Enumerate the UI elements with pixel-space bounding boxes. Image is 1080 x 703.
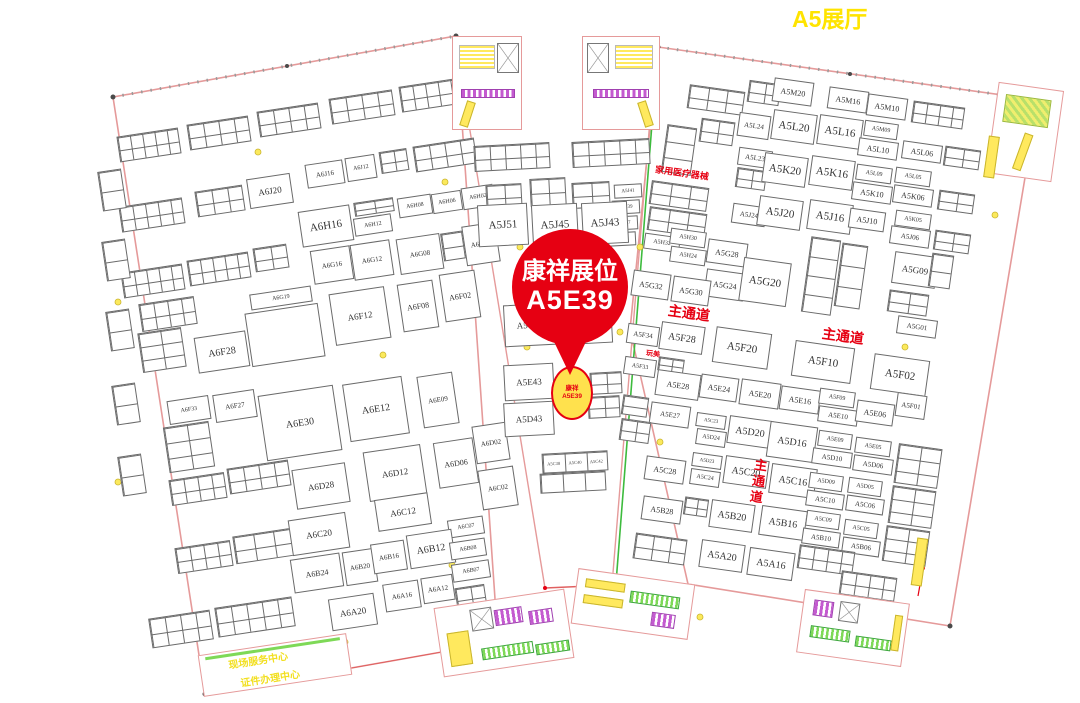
booth-cells: [256, 103, 321, 138]
booth-A6F12: A6F12: [328, 286, 391, 346]
booth-label: A6D02: [480, 438, 502, 449]
booth-cells: [893, 443, 942, 489]
booth-label: A5E27: [660, 410, 681, 421]
booth-A5G20: A5G20: [738, 257, 792, 307]
booth-A6C02: A6C02: [477, 466, 519, 511]
booth-label: A5M20: [780, 86, 806, 98]
booth-label: A6B12: [416, 541, 446, 556]
booth-A6F08: A6F08: [397, 280, 440, 333]
escalator-ramp: [637, 100, 654, 128]
booth-A5E27: A5E27: [649, 401, 692, 428]
booth-label: A6B20: [349, 562, 370, 573]
booth-label: A5D06: [862, 460, 884, 471]
booth-label: A5C24: [696, 474, 714, 482]
booth-cells: [97, 168, 127, 211]
booth-label: A5D10: [821, 453, 843, 464]
booth-A6F27: A6F27: [212, 389, 258, 423]
booth-A5B16: A5B16: [758, 505, 808, 541]
booth-cells: [116, 128, 181, 163]
booth-label: A5F34: [633, 330, 653, 341]
booth-A5K10: A5K10: [851, 181, 893, 204]
entrance-module: [986, 82, 1064, 182]
booth-label: A5K05: [904, 216, 922, 224]
booth-cells: [911, 100, 966, 129]
booth-A5K06: A5K06: [892, 184, 934, 207]
booth-label: A5D23: [699, 457, 714, 464]
booth-label: A6B24: [305, 567, 329, 579]
booth-label: A6C07: [457, 523, 475, 531]
hall-title: A5展厅: [792, 0, 867, 34]
pin-booth-name: 康祥展位: [522, 258, 618, 286]
booth-cells: [683, 496, 709, 517]
booth-label: A5J51: [488, 218, 517, 231]
booth-label: A5B16: [768, 516, 798, 531]
booth-A5J10: A5J10: [848, 208, 886, 233]
booth-A5E16: A5E16: [779, 385, 822, 414]
booth-label: A6B16: [378, 552, 399, 563]
booth-label: A5M10: [874, 101, 900, 113]
booth-A6J16: A6J16: [304, 159, 345, 188]
booth-label: A5G30: [679, 285, 704, 297]
booth-label: A5H30: [679, 234, 697, 242]
booth-cells: [687, 84, 746, 116]
aisle-label: 玩美: [645, 348, 660, 360]
booth-A5E10: A5E10: [817, 405, 859, 426]
booth-label: A5F33: [631, 363, 648, 371]
booth-A6J20: A6J20: [246, 173, 294, 209]
booth-label: A5E20: [748, 388, 772, 400]
booth-label: A5D43: [516, 413, 543, 424]
booth-label: A5B06: [850, 542, 871, 553]
booth-cells: [621, 394, 650, 417]
booth-cells: [589, 371, 622, 395]
booth-label: A5K06: [901, 190, 926, 202]
booth-cells: [619, 418, 652, 444]
booth-label: A6C20: [305, 527, 332, 541]
booth-label: A5L16: [824, 124, 857, 140]
booth-A6A20: A6A20: [328, 593, 378, 631]
service-block: [446, 630, 473, 667]
booth-A6J12: A6J12: [344, 154, 377, 182]
booth-A6H06: A6H06: [431, 190, 464, 214]
booth-A6E12: A6E12: [342, 376, 410, 442]
booth-cells: [117, 453, 147, 496]
booth-A5M09: A5M09: [863, 120, 899, 141]
booth-A5C28: A5C28: [644, 455, 687, 484]
booth-label: A5J43: [590, 216, 619, 229]
booth-A6C12: A6C12: [374, 492, 432, 532]
booth-A5D24: A5D24: [695, 428, 727, 448]
booth-cells: [379, 148, 410, 174]
booth-A6H16: A6H16: [298, 204, 355, 247]
entrance-escalator: [1002, 94, 1051, 128]
booth-A5D23: A5D23: [691, 452, 723, 470]
booth-label: A5L06: [910, 146, 934, 158]
booth-label: A5F28: [667, 331, 696, 346]
top-right-service-module: [582, 36, 660, 130]
booth-cells: [105, 308, 135, 351]
booth-label: A6E12: [361, 401, 391, 416]
booth-label: A5E09: [826, 436, 844, 444]
booth-A5F01: A5F01: [894, 392, 927, 420]
fixture-strip: [494, 606, 524, 626]
pin-booth-number: A5E39: [526, 285, 614, 316]
booth-A6A12: A6A12: [420, 574, 455, 604]
booth-A5G01: A5G01: [896, 315, 938, 338]
target-booth-name: 康祥: [566, 385, 579, 393]
booth-label: A5M16: [835, 94, 861, 106]
booth-label: A6F28: [207, 345, 236, 360]
booth-A5L09: A5L09: [855, 164, 893, 185]
fixture-strip: [812, 599, 834, 618]
booth-A5C09: A5C09: [805, 510, 841, 531]
booth-A5H24: A5H24: [669, 246, 707, 267]
booth-label: A5L10: [866, 143, 890, 155]
escalator-hatch: [459, 45, 495, 69]
elevator-icon: [587, 43, 609, 73]
booth-label: A6D28: [307, 479, 335, 493]
booth-A6E09: A6E09: [416, 372, 459, 429]
booth-label: A6D06: [444, 457, 469, 469]
booth-A5L16: A5L16: [816, 114, 864, 150]
booth-A6A16: A6A16: [382, 579, 422, 612]
booth-cells: [571, 138, 650, 168]
booth-label: A5C16: [778, 474, 808, 489]
booth-A5F34: A5F34: [626, 323, 660, 347]
booth-A5L24: A5L24: [736, 112, 771, 140]
stairs-hatch: [629, 591, 680, 610]
top-left-service-module: [452, 36, 522, 130]
booth-cells: [168, 472, 227, 506]
booth-label: A5G24: [713, 279, 738, 291]
booth-cells: [943, 146, 981, 171]
booth-A6D06: A6D06: [433, 437, 479, 488]
booth-label: A6G19: [272, 294, 290, 303]
booth-label: A6H08: [406, 202, 424, 211]
booth-cells: [933, 230, 971, 255]
booth-label: A5E43: [516, 376, 542, 387]
booth-A5E20: A5E20: [738, 378, 781, 409]
booth-A5E28: A5E28: [654, 369, 701, 401]
booth-A5G32: A5G32: [630, 269, 671, 300]
booth-label: A5J41: [621, 188, 634, 194]
booth-label: A6B08: [459, 545, 477, 553]
booth-A5M10: A5M10: [866, 93, 909, 120]
booth-A5F20: A5F20: [712, 326, 772, 369]
booth-label: A5A16: [756, 557, 787, 572]
booth-label: A5C05: [852, 525, 870, 533]
booth-cells: [698, 118, 735, 146]
booth-label: A5L23: [745, 153, 766, 164]
booth-cells: [252, 244, 289, 273]
booth-label: A5H24: [679, 252, 697, 260]
booth-A6C07: A6C07: [447, 515, 485, 538]
booth-A5L10: A5L10: [857, 137, 899, 160]
booth-label: A5M09: [871, 126, 890, 135]
booth-cells: [412, 138, 477, 173]
escalator-ramp: [890, 615, 903, 652]
booth-cells: [194, 185, 245, 218]
booth-cells: [937, 190, 975, 215]
booth-A5A20: A5A20: [698, 539, 745, 573]
booth-A5C10: A5C10: [805, 489, 845, 510]
target-booth-number: A5E39: [562, 393, 582, 401]
booth-label: A5L09: [865, 170, 883, 178]
booth-cells: [111, 382, 141, 425]
booth-label: A5L20: [778, 119, 811, 135]
booth-label: A5C10: [814, 495, 835, 506]
booth-A6B08: A6B08: [449, 537, 487, 560]
booth-A5D43: A5D43: [503, 401, 555, 438]
booth-cells: [244, 303, 325, 367]
booth-label: A6J16: [315, 169, 334, 180]
booth-label: A6G08: [409, 249, 431, 260]
booth-cells: [473, 142, 550, 172]
booth-cells: [232, 528, 295, 565]
booth-label: A6J20: [258, 184, 283, 197]
booth-cells: [120, 264, 185, 299]
booth-cell-label: A5C40: [564, 459, 586, 465]
booth-A5F02: A5F02: [870, 353, 930, 396]
elevator-icon: [469, 607, 494, 632]
booth-label: A6F08: [406, 300, 429, 312]
booth-A5L20: A5L20: [770, 109, 818, 145]
booth-label: A5B28: [650, 504, 674, 516]
booth-A5F28: A5F28: [658, 321, 705, 355]
booth-label: A5C09: [814, 516, 832, 524]
booth-A6G12: A6G12: [350, 239, 395, 281]
booth-A5J20: A5J20: [756, 195, 804, 231]
booth-A5F33: A5F33: [623, 356, 657, 378]
fixture-strip: [461, 89, 515, 98]
booth-label: A5D09: [817, 478, 835, 486]
booth-label: A6F27: [225, 401, 245, 412]
booth-A5J51: A5J51: [477, 203, 529, 248]
escalator-ramp: [459, 100, 476, 128]
booth-cells: [540, 470, 607, 493]
booth-A5D06: A5D06: [852, 454, 894, 475]
booth-A6H08: A6H08: [397, 194, 434, 219]
booth-label: A5C06: [854, 500, 875, 511]
booth-A5K20: A5K20: [761, 152, 809, 188]
service-block: [583, 594, 624, 608]
booth-label: A5K16: [815, 165, 849, 181]
booth-cells: [632, 533, 687, 566]
booth-label: A5G32: [639, 279, 664, 291]
fixture-strip: [528, 608, 554, 625]
booth-label: A6A16: [391, 591, 413, 602]
booth-label: A6J12: [353, 164, 369, 172]
booth-cells: [148, 610, 214, 649]
booth-label: A5B20: [717, 509, 747, 524]
booth-cells: [887, 289, 930, 316]
booth-A5C06: A5C06: [845, 494, 885, 515]
booth-label: A5K10: [860, 187, 885, 199]
booth-A5M16: A5M16: [827, 86, 870, 113]
booth-A6G16: A6G16: [310, 245, 355, 285]
booth-cell-label: A5C38: [543, 460, 565, 466]
booth-A5E09: A5E09: [817, 430, 853, 451]
fixture-strip: [593, 89, 649, 98]
booth-cells: [138, 296, 198, 332]
booth-cells: [174, 540, 233, 574]
booth-label: A6B07: [462, 567, 480, 575]
booth-label: A5L24: [744, 121, 765, 132]
booth-A6C20: A6C20: [288, 512, 351, 556]
booth-A5C23: A5C23: [695, 412, 727, 430]
booth-cells: [328, 89, 395, 124]
booth-A6B24: A6B24: [290, 552, 344, 593]
booth-label: A5G09: [901, 263, 929, 277]
booth-label: A5B10: [810, 533, 831, 544]
booth-A5G28: A5G28: [706, 238, 749, 267]
booth-label: A6F33: [180, 406, 197, 414]
booth-label: A5E24: [707, 382, 731, 394]
elevator-icon: [838, 601, 861, 624]
booth-label: A6H12: [364, 221, 382, 230]
booth-label: A6H02: [469, 193, 487, 202]
booth-A6F28: A6F28: [194, 330, 251, 373]
booth-label: A5G01: [906, 322, 928, 333]
booth-label: A5E28: [666, 379, 690, 391]
booth-A5E24: A5E24: [699, 373, 740, 402]
booth-label: A6C02: [487, 483, 508, 494]
fixture-strip: [650, 612, 676, 629]
booth-A5J41: A5J41: [614, 183, 643, 198]
booth-cells: [137, 327, 186, 373]
exhibition-floorplan: A6J20A6J16A6J12A6H16A6H12A6H08A6H06A6H02…: [0, 0, 1080, 703]
booth-label: A5F02: [884, 367, 916, 383]
booth-label: A5J06: [900, 232, 919, 242]
booth-cells: [214, 596, 296, 637]
stairs-hatch: [854, 635, 891, 651]
booth-cells: [888, 485, 937, 529]
booth-label: A6E09: [428, 395, 449, 406]
booth-A6B07: A6B07: [451, 559, 491, 582]
escalator-ramp: [1012, 132, 1033, 171]
booth-label: A6H06: [438, 198, 456, 207]
booth-label: A5J10: [856, 214, 878, 226]
booth-A6D28: A6D28: [291, 462, 350, 510]
booth-cells: [226, 460, 291, 495]
booth-label: A5F20: [726, 340, 758, 356]
booth-A5E06: A5E06: [855, 399, 896, 426]
booth-label: A6H16: [309, 218, 343, 235]
booth-A6B16: A6B16: [370, 540, 408, 575]
booth-A5K16: A5K16: [808, 155, 856, 191]
booth-label: A5C23: [703, 418, 718, 425]
stairs-hatch: [535, 640, 570, 656]
booth-label: A6D12: [381, 466, 409, 480]
booth-cells: [163, 421, 215, 473]
booth-A5J16: A5J16: [806, 199, 854, 235]
booth-A5A16: A5A16: [746, 547, 795, 581]
booth-label: A6F02: [448, 290, 471, 302]
booth-cells: [186, 252, 251, 287]
booth-label: A5F01: [901, 401, 921, 412]
booth-label: A5F09: [828, 394, 845, 402]
booth-A5C24: A5C24: [689, 468, 721, 488]
booth-label: A6G16: [321, 260, 343, 271]
booth-A5B28: A5B28: [641, 495, 684, 524]
booth-cell-label: A5C42: [586, 458, 608, 464]
booth-label: A6C12: [389, 505, 416, 519]
booth-label: A5C28: [653, 464, 677, 476]
booth-label: A6F12: [347, 309, 373, 323]
booth-A6G08: A6G08: [396, 233, 445, 275]
booth-label: A6A12: [427, 584, 449, 595]
booth-label: A6G12: [361, 255, 383, 266]
booth-label: A5L05: [904, 173, 922, 181]
booth-A5D10: A5D10: [811, 447, 853, 468]
booth-A5L06: A5L06: [901, 140, 943, 163]
booth-label: A5E05: [864, 443, 882, 451]
booth-cells: [529, 177, 566, 207]
service-block: [585, 578, 626, 592]
booth-label: A5J20: [765, 205, 795, 221]
location-pin: 康祥展位 A5E39: [512, 229, 628, 345]
stairs-hatch: [481, 641, 534, 661]
booth-label: A5D20: [735, 425, 766, 440]
booth-label: A5F10: [807, 354, 839, 370]
booth-A5D16: A5D16: [766, 421, 819, 463]
booth-label: A5G28: [715, 247, 740, 259]
elevator-icon: [497, 43, 519, 73]
booth-A6F02: A6F02: [439, 270, 482, 323]
booth-label: A5D24: [702, 434, 720, 442]
booth-cells: [101, 238, 131, 281]
booth-A6E30: A6E30: [258, 385, 343, 462]
booth-label: A6E30: [285, 415, 315, 430]
booth-A6B12: A6B12: [406, 529, 457, 569]
booth-label: A5J24: [739, 210, 758, 220]
escalator-hatch: [615, 45, 653, 69]
booth-label: A5A20: [707, 549, 738, 564]
booth-label: A5D16: [777, 435, 808, 450]
booth-label: A5K20: [768, 162, 802, 178]
booth-cells: [118, 197, 185, 232]
booth-label: A6A20: [339, 605, 367, 619]
booth-cells: [186, 116, 251, 151]
booth-label: A5E10: [828, 411, 849, 422]
stairs-hatch: [809, 625, 850, 642]
booth-label: A5E16: [788, 394, 812, 406]
booth-label: A5J16: [815, 209, 845, 225]
booth-A6H12: A6H12: [353, 213, 393, 236]
booth-label: A5D05: [856, 483, 874, 491]
booth-label: A5E06: [863, 407, 887, 419]
booth-label: A5G20: [748, 274, 782, 290]
booth-cells: [928, 253, 955, 290]
